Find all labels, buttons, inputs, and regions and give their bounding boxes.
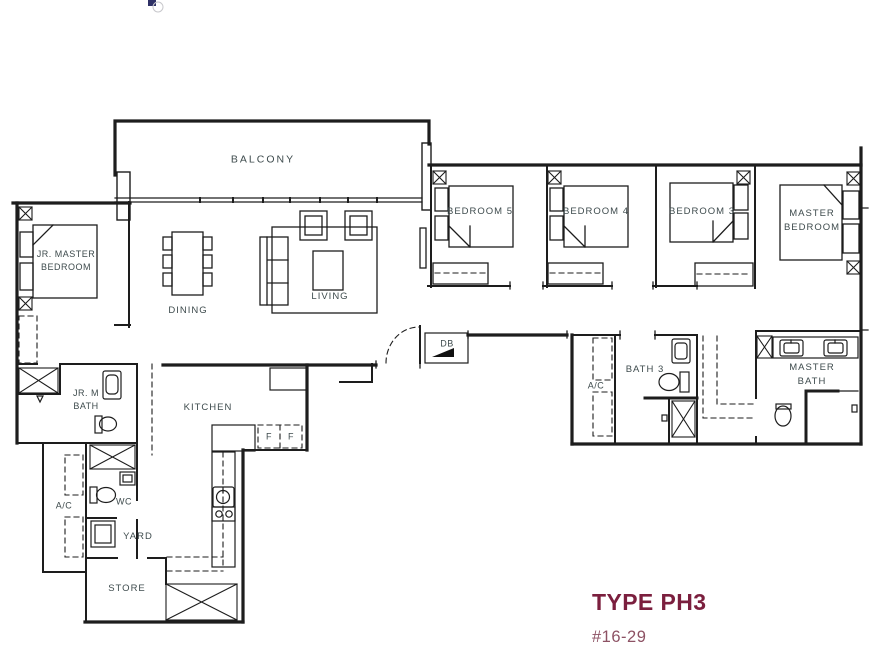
wardrobes xyxy=(433,263,753,286)
shower-door-marker xyxy=(662,415,667,421)
compass-icon xyxy=(148,0,163,12)
jr-bath-toilet xyxy=(95,416,117,433)
shower-bath3 xyxy=(672,401,695,437)
label-master-bath: MASTER BATH xyxy=(789,361,835,389)
tv-console xyxy=(420,228,426,268)
void-box xyxy=(166,584,237,620)
label-bath3: BATH 3 xyxy=(626,363,665,377)
shower-wc xyxy=(90,445,135,469)
shower-door-marker xyxy=(852,405,857,412)
label-fridge-1: F xyxy=(266,430,272,443)
jr-bath-sink xyxy=(103,371,121,399)
master-bath-vanity xyxy=(773,337,858,358)
label-db: DB xyxy=(440,337,454,350)
label-dining: DINING xyxy=(168,304,207,318)
plan-type-title: TYPE PH3 xyxy=(592,589,706,616)
label-store: STORE xyxy=(108,582,146,596)
coffee-table xyxy=(313,251,343,290)
floorplan-linework xyxy=(0,0,884,671)
shower-jr-bath xyxy=(19,368,58,393)
label-bedroom4: BEDROOM 4 xyxy=(563,205,629,219)
label-jr-m-bath: JR. M BATH xyxy=(73,387,99,413)
label-fridge-2: F xyxy=(288,430,294,443)
label-jr-master-bedroom: JR. MASTER BEDROOM xyxy=(37,248,96,274)
label-bedroom5: BEDROOM 5 xyxy=(447,205,513,219)
plan-unit-number: #16-29 xyxy=(592,628,646,647)
label-yard: YARD xyxy=(123,530,153,544)
label-balcony: BALCONY xyxy=(231,152,295,167)
balcony-rail xyxy=(115,198,422,202)
kitchen-top-cabinet xyxy=(270,368,307,390)
label-kitchen: KITCHEN xyxy=(184,401,233,415)
kitchen-tall-cabinet xyxy=(212,425,255,451)
wc-toilet xyxy=(90,487,116,503)
label-ac-upper: A/C xyxy=(588,379,605,392)
label-bedroom3: BEDROOM 3 xyxy=(669,205,735,219)
washer xyxy=(91,521,115,547)
label-living: LIVING xyxy=(311,290,348,304)
door-pivot-marker xyxy=(37,396,43,402)
label-ac-lower: A/C xyxy=(56,499,73,512)
living-dining-furniture xyxy=(115,143,431,313)
bath3-sink xyxy=(672,339,690,363)
wc-sink xyxy=(120,472,135,485)
fixtures xyxy=(37,333,858,567)
master-bath-toilet xyxy=(775,404,791,426)
floor-plan-canvas: BALCONY DINING LIVING BEDROOM 5 BEDROOM … xyxy=(0,0,884,671)
sofa xyxy=(260,237,288,305)
label-master-bedroom: MASTER BEDROOM xyxy=(784,207,840,235)
dining-set xyxy=(163,232,212,295)
label-wc: WC xyxy=(116,495,132,508)
beds xyxy=(20,183,859,298)
armchairs xyxy=(300,211,372,240)
column xyxy=(422,143,431,210)
